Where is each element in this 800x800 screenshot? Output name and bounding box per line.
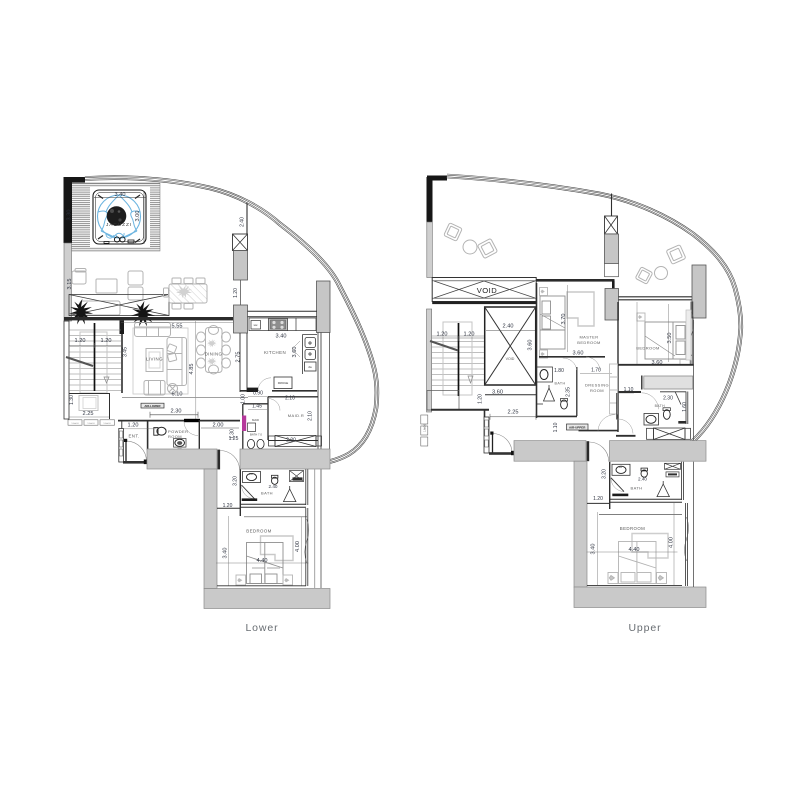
svg-text:2.30: 2.30 [663, 396, 673, 402]
svg-text:3.20: 3.20 [233, 476, 239, 486]
svg-text:DINING: DINING [205, 352, 223, 357]
svg-text:ENT.: ENT. [128, 434, 139, 439]
svg-text:1.6x0.6: 1.6x0.6 [71, 423, 79, 425]
svg-text:BEDROOM: BEDROOM [246, 529, 272, 534]
svg-text:1.00: 1.00 [241, 394, 247, 404]
svg-text:BATH: BATH [655, 404, 666, 408]
svg-text:MAID.R: MAID.R [288, 413, 304, 418]
svg-text:1.30: 1.30 [69, 395, 75, 405]
svg-text:2.75: 2.75 [236, 352, 242, 363]
svg-text:AIR-UPPER: AIR-UPPER [569, 426, 586, 430]
svg-text:MASTER: MASTER [579, 335, 598, 340]
svg-text:1.20: 1.20 [128, 423, 139, 429]
svg-text:2.40: 2.40 [240, 217, 246, 227]
svg-text:ROOM: ROOM [590, 388, 604, 393]
svg-text:BATH: BATH [261, 491, 273, 496]
svg-text:1.6x0.6: 1.6x0.6 [424, 423, 427, 432]
svg-text:4.00: 4.00 [669, 537, 675, 548]
svg-text:2.25: 2.25 [508, 409, 519, 415]
svg-text:5.55: 5.55 [172, 324, 183, 330]
svg-text:1.20: 1.20 [437, 331, 448, 337]
svg-text:ww: ww [254, 324, 258, 327]
svg-text:1.6x0.6: 1.6x0.6 [87, 423, 95, 425]
svg-text:JACUZZI: JACUZZI [106, 222, 132, 228]
svg-text:VOID: VOID [506, 357, 515, 361]
svg-text:1.80: 1.80 [554, 368, 564, 374]
svg-text:2.40: 2.40 [503, 324, 514, 330]
svg-text:3.60: 3.60 [528, 340, 534, 351]
svg-text:1.30: 1.30 [230, 429, 236, 439]
svg-text:BATH: BATH [555, 382, 566, 386]
svg-text:2.35: 2.35 [566, 387, 572, 397]
svg-text:1.6x0.6: 1.6x0.6 [103, 423, 111, 425]
svg-text:2.10: 2.10 [285, 395, 295, 401]
svg-text:4.00: 4.00 [295, 541, 301, 552]
svg-text:DRESSING: DRESSING [585, 383, 609, 388]
svg-text:4.40: 4.40 [257, 558, 268, 564]
svg-text:2.40: 2.40 [638, 477, 647, 482]
svg-text:FRIDGE: FRIDGE [278, 381, 289, 385]
svg-text:1.20: 1.20 [75, 338, 86, 344]
svg-text:LIVING: LIVING [146, 357, 163, 362]
svg-text:3.50: 3.50 [667, 333, 673, 344]
svg-text:0.90: 0.90 [253, 391, 263, 397]
svg-text:BATH: BATH [631, 485, 643, 490]
svg-text:2.30: 2.30 [171, 409, 182, 415]
svg-text:3.70: 3.70 [561, 314, 567, 325]
svg-text:3.40: 3.40 [223, 548, 229, 559]
svg-text:BEDROOM: BEDROOM [577, 340, 600, 345]
svg-text:3.40: 3.40 [115, 192, 126, 198]
svg-text:2.25: 2.25 [83, 411, 94, 417]
svg-text:3.60: 3.60 [573, 351, 584, 357]
svg-text:1.20: 1.20 [101, 338, 112, 344]
svg-text:6.10: 6.10 [172, 391, 183, 397]
svg-text:BEDROOM: BEDROOM [620, 526, 646, 531]
svg-text:2.10: 2.10 [308, 411, 314, 421]
svg-text:BATH 7.0: BATH 7.0 [250, 433, 262, 437]
svg-text:3.45: 3.45 [123, 347, 129, 357]
svg-text:1.10: 1.10 [553, 422, 559, 432]
svg-text:MAID: MAID [252, 418, 259, 422]
svg-text:2.40: 2.40 [269, 484, 278, 489]
svg-text:1.20: 1.20 [464, 331, 475, 337]
svg-text:1.60: 1.60 [682, 402, 688, 412]
svg-text:VOID: VOID [477, 286, 498, 295]
svg-text:BEDROOM: BEDROOM [636, 346, 659, 351]
svg-text:ROOM: ROOM [168, 434, 182, 439]
svg-text:3.00: 3.00 [135, 211, 141, 222]
svg-text:3.40: 3.40 [591, 544, 597, 555]
svg-text:4.85: 4.85 [189, 364, 195, 375]
svg-text:KITCHEN: KITCHEN [264, 350, 286, 355]
svg-text:AIR-LOWER: AIR-LOWER [144, 404, 160, 408]
svg-text:3.40: 3.40 [276, 334, 287, 340]
svg-text:3.20: 3.20 [602, 469, 608, 479]
svg-text:3.30: 3.30 [67, 210, 73, 221]
svg-text:4.40: 4.40 [629, 547, 640, 553]
svg-text:1.20: 1.20 [233, 288, 239, 298]
svg-text:Lower: Lower [245, 622, 278, 634]
svg-text:2.20: 2.20 [286, 438, 296, 444]
svg-text:1.20: 1.20 [478, 394, 484, 404]
svg-text:2.00: 2.00 [213, 422, 224, 428]
svg-text:Upper: Upper [628, 622, 661, 634]
svg-text:1.20: 1.20 [593, 496, 603, 502]
